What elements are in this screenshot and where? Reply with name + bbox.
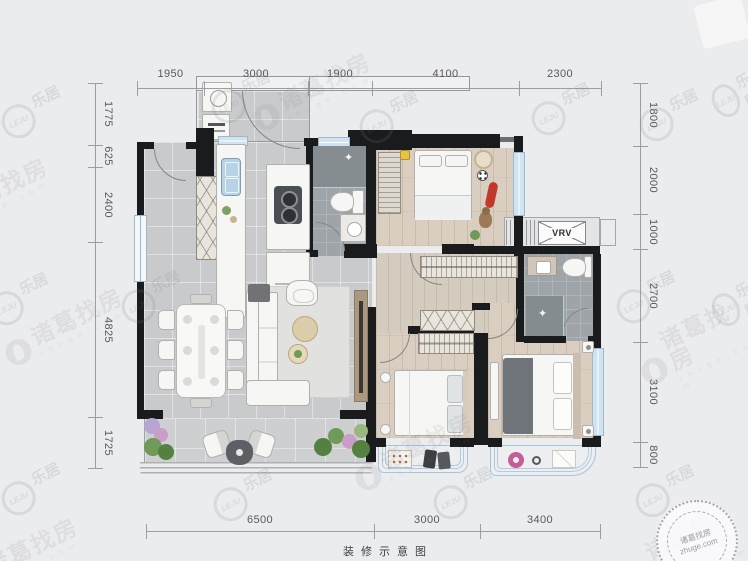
dim-label-left: 2400	[102, 191, 114, 217]
dim-tick	[88, 145, 103, 146]
dim-tick	[633, 442, 648, 443]
dim-label-bottom: 3400	[527, 514, 553, 526]
dim-tick	[88, 242, 103, 243]
dim-label-right: 1800	[647, 101, 659, 127]
dim-tick	[308, 81, 309, 96]
dim-tick	[519, 81, 520, 96]
floorplan-canvas: VRV	[0, 0, 748, 561]
dim-tick	[633, 467, 648, 468]
dim-tick	[374, 524, 375, 539]
stamp-text: 诸葛找房 zhuge.com	[659, 503, 735, 561]
dim-label-top: 3000	[243, 68, 269, 80]
dim-line-left	[95, 83, 96, 468]
dimension-rulers: 1950300019004100230065003000340017756252…	[0, 0, 748, 561]
dim-label-left: 625	[102, 146, 114, 166]
dim-tick	[88, 83, 103, 84]
dim-label-right: 800	[647, 445, 659, 465]
dim-tick	[601, 81, 602, 96]
dim-label-left: 1775	[102, 101, 114, 127]
dim-tick	[88, 468, 103, 469]
dim-line-top	[137, 88, 601, 89]
dim-label-top: 2300	[547, 68, 573, 80]
dim-line-right	[640, 83, 641, 467]
dim-label-bottom: 3000	[414, 514, 440, 526]
dim-tick	[600, 524, 601, 539]
dim-tick	[633, 146, 648, 147]
dim-tick	[480, 524, 481, 539]
plan-caption: 装修示意图	[343, 543, 433, 559]
dim-label-right: 3100	[647, 379, 659, 405]
dim-line-bottom	[146, 531, 600, 532]
dim-tick	[633, 83, 648, 84]
dim-label-left: 1725	[102, 429, 114, 455]
dim-tick	[633, 249, 648, 250]
dim-tick	[633, 214, 648, 215]
dim-label-right: 2700	[647, 282, 659, 308]
dim-tick	[633, 342, 648, 343]
dim-label-right: 2000	[647, 167, 659, 193]
dim-label-bottom: 6500	[247, 514, 273, 526]
dim-label-top: 1950	[157, 68, 183, 80]
dim-tick	[88, 417, 103, 418]
dim-label-left: 4825	[102, 316, 114, 342]
dim-tick	[137, 81, 138, 96]
dim-tick	[372, 81, 373, 96]
dim-label-top: 1900	[327, 68, 353, 80]
dim-tick	[88, 167, 103, 168]
dim-label-right: 1000	[647, 218, 659, 244]
dim-tick	[204, 81, 205, 96]
dim-tick	[146, 524, 147, 539]
dim-label-top: 4100	[432, 68, 458, 80]
